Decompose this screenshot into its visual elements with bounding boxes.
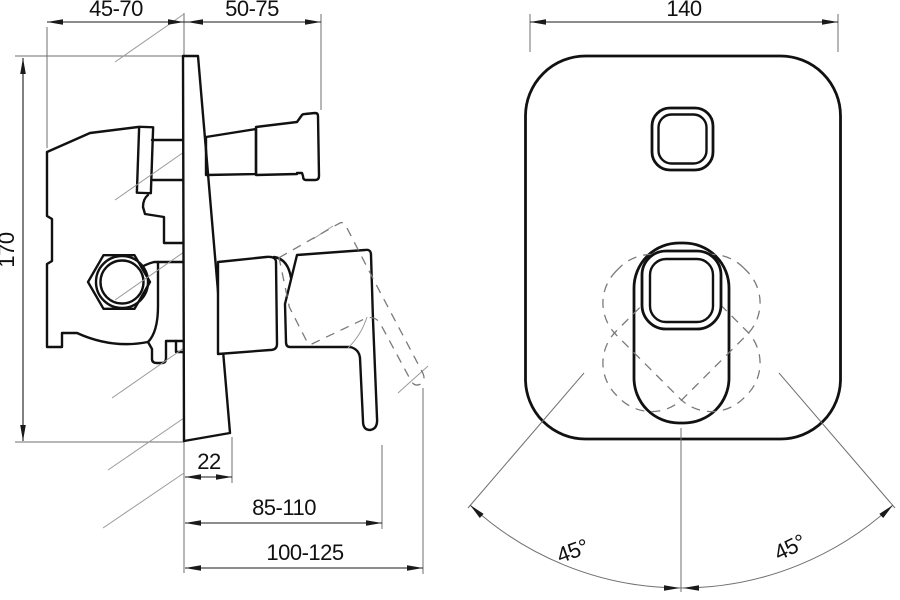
dim-label-plate-offset: 22 [197, 449, 221, 474]
dim-label-swing-right: 45° [770, 529, 810, 565]
outlet-spout-side [206, 113, 319, 180]
mixer-body [47, 127, 184, 363]
dim-label-swing-left: 45° [553, 534, 591, 568]
technical-drawing-canvas: 45-70 50-75 170 22 85-110 100-125 140 [0, 0, 900, 600]
front-view: 140 45° 45° [468, 0, 895, 592]
cartridge-housing [143, 195, 184, 243]
handle-escutcheon-side [218, 257, 277, 354]
dim-label-lever-reach-up: 100-125 [266, 540, 344, 565]
dim-label-plate-width: 140 [666, 0, 701, 21]
dim-label-lever-reach-down: 85-110 [252, 495, 316, 520]
dim-label-body-height: 170 [0, 232, 19, 267]
dim-label-wall-depth: 45-70 [89, 0, 143, 21]
wall-plate-side [183, 56, 230, 441]
body-outline [47, 127, 184, 363]
diverter-button [652, 108, 713, 170]
handle-lever-solid [285, 250, 377, 430]
mixer-dimension-drawing: 45-70 50-75 170 22 85-110 100-125 140 [0, 0, 900, 600]
dim-label-outlet-projection: 50-75 [225, 0, 279, 21]
front-view-dimensions: 140 [530, 0, 838, 52]
diverter-button-outer [652, 108, 713, 170]
top-pipe [152, 140, 184, 180]
side-view: 45-70 50-75 170 22 85-110 100-125 [0, 0, 428, 574]
handle-side [218, 219, 427, 430]
spout-body-and-cap [256, 113, 319, 180]
spout-neck [206, 129, 256, 175]
